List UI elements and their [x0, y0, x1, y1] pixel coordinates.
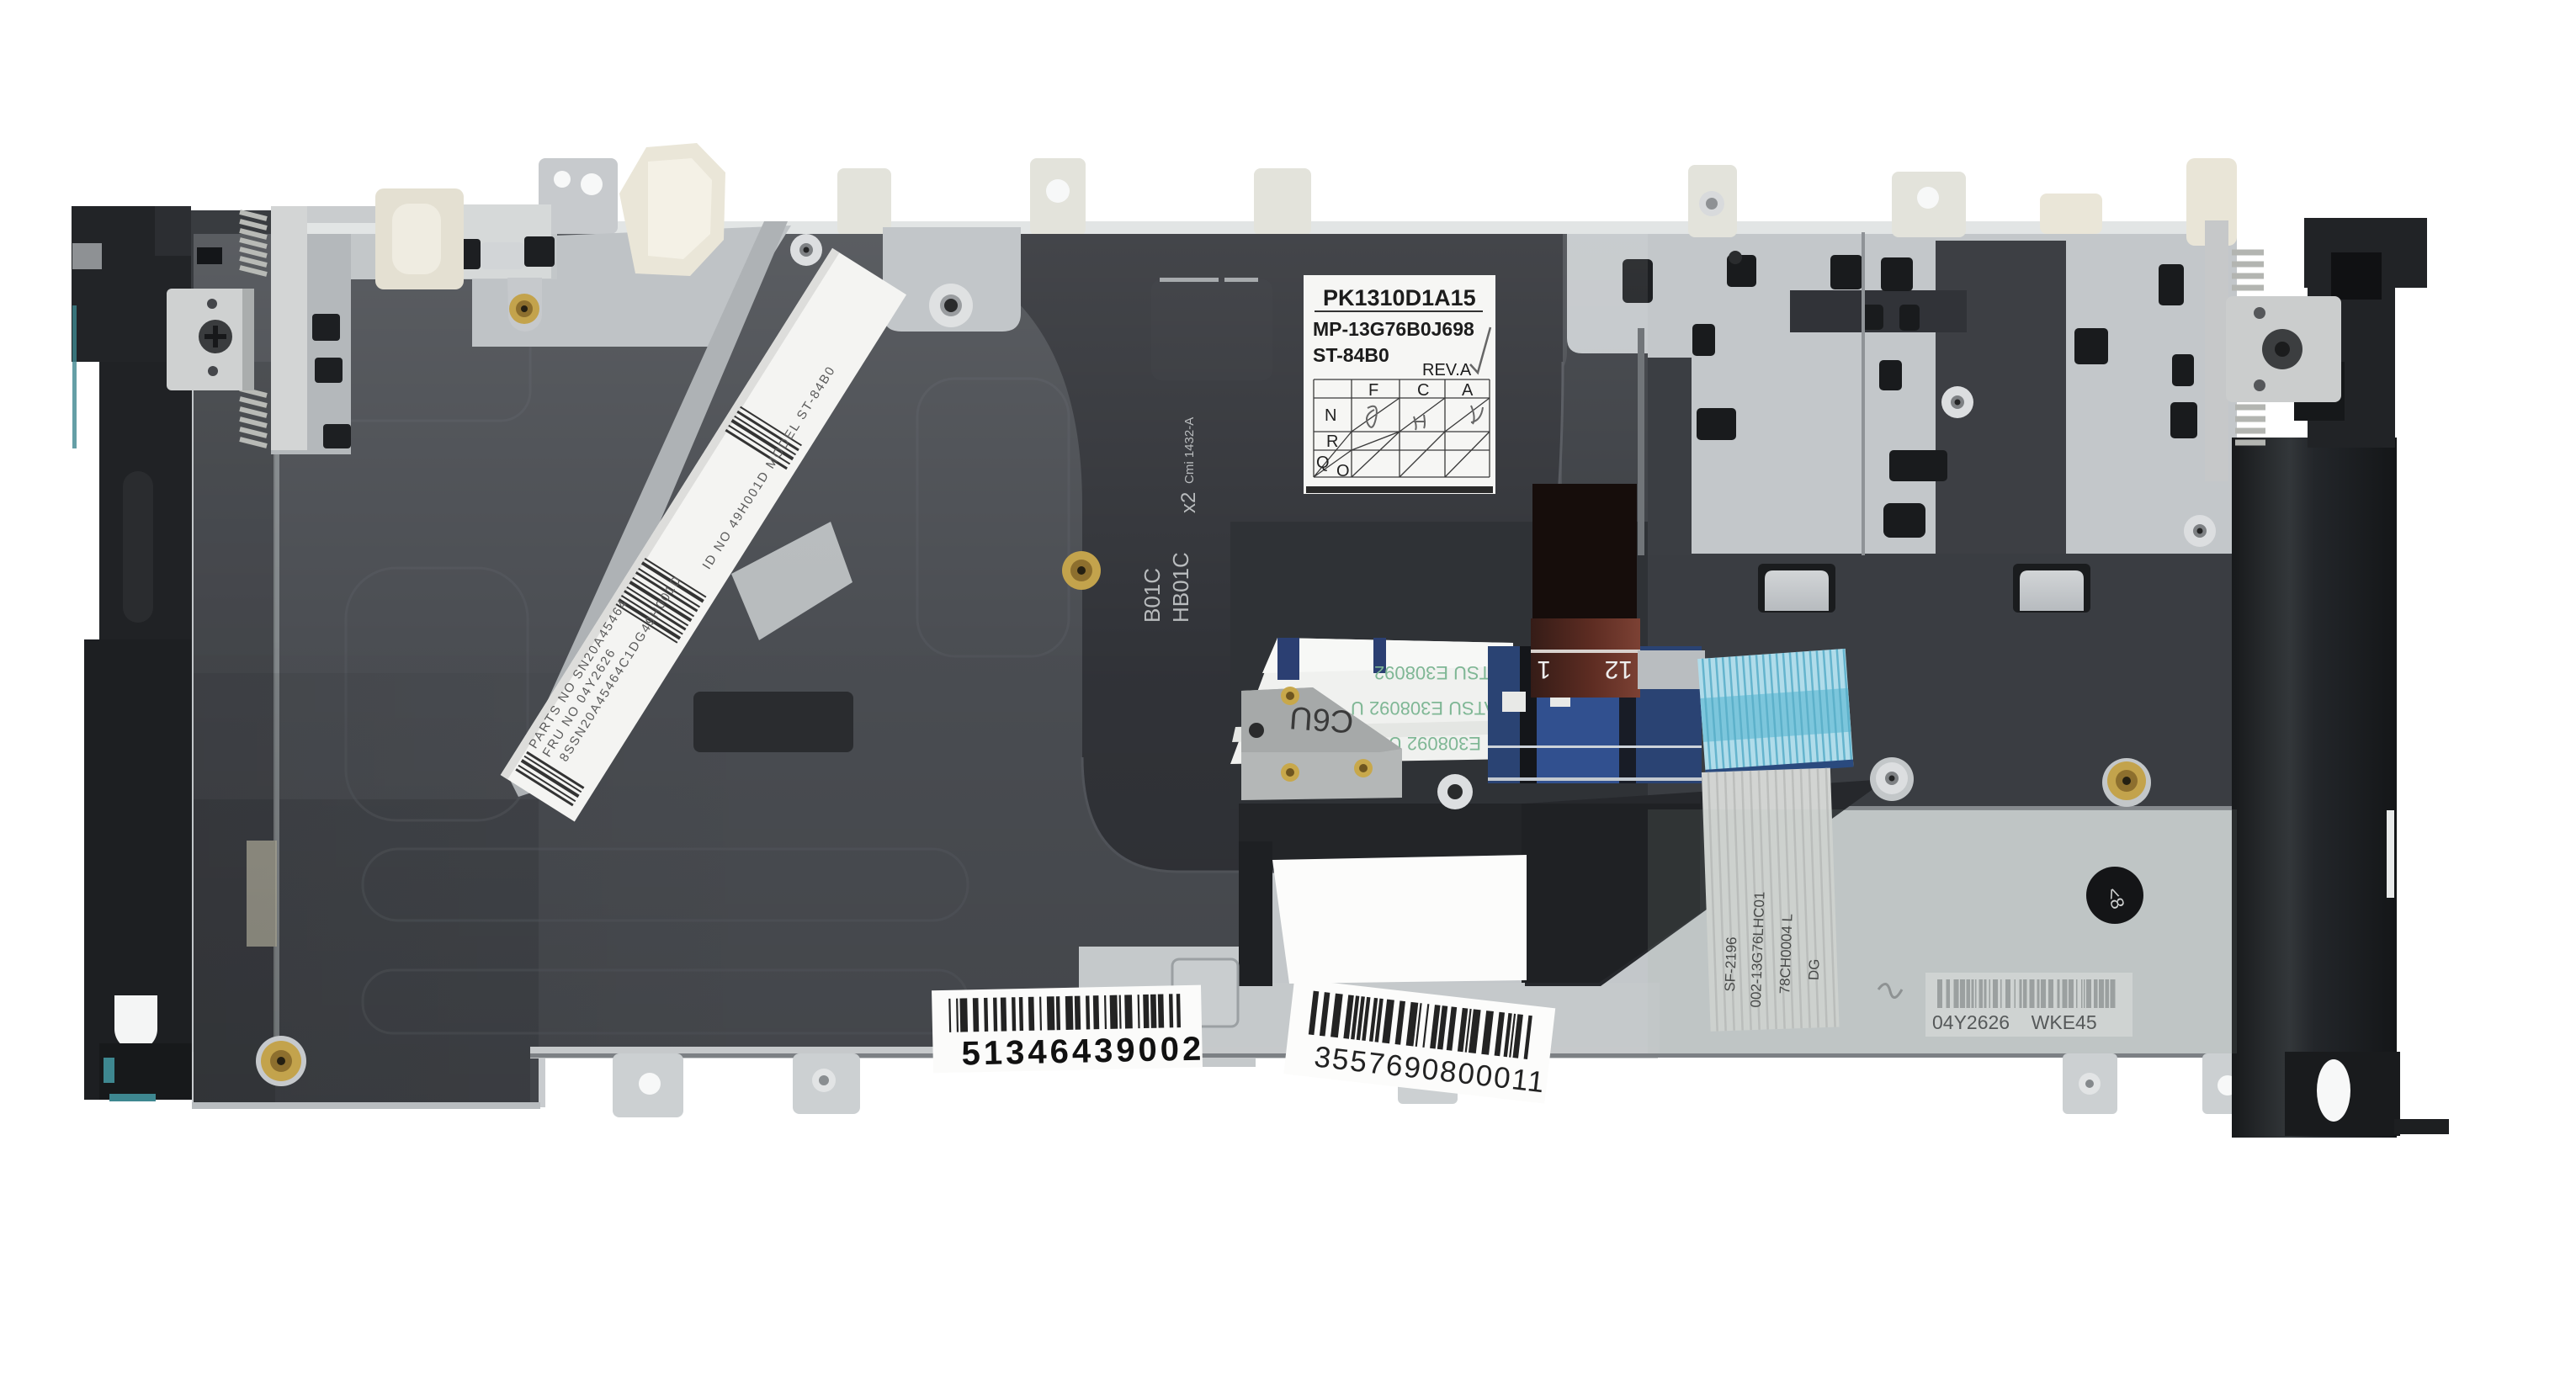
- svg-text:O: O: [1336, 462, 1350, 480]
- svg-text:Cmi 1432-A: Cmi 1432-A: [1182, 417, 1197, 484]
- svg-text:HB01C: HB01C: [1168, 552, 1193, 623]
- svg-text:12: 12: [1605, 655, 1633, 683]
- svg-text:R: R: [1326, 432, 1338, 451]
- svg-text:B01C: B01C: [1139, 568, 1165, 623]
- svg-text:C6U: C6U: [1288, 699, 1355, 739]
- svg-text:ST-84B0: ST-84B0: [1313, 344, 1389, 366]
- svg-text:N: N: [1325, 406, 1336, 425]
- svg-text:MP-13G76B0J698: MP-13G76B0J698: [1313, 318, 1474, 340]
- svg-text:1: 1: [1537, 655, 1551, 683]
- svg-text:REV.A: REV.A: [1422, 361, 1472, 379]
- svg-text:PK1310D1A15: PK1310D1A15: [1323, 285, 1476, 310]
- svg-text:A: A: [1462, 381, 1474, 400]
- svg-text:51346439002: 51346439002: [961, 1031, 1205, 1073]
- svg-text:F: F: [1368, 381, 1378, 400]
- svg-text:x2: x2: [1177, 492, 1200, 513]
- svg-text:TATSU E308092 U: TATSU E308092 U: [1351, 698, 1506, 719]
- svg-text:C: C: [1417, 381, 1429, 400]
- svg-text:Q: Q: [1316, 454, 1330, 472]
